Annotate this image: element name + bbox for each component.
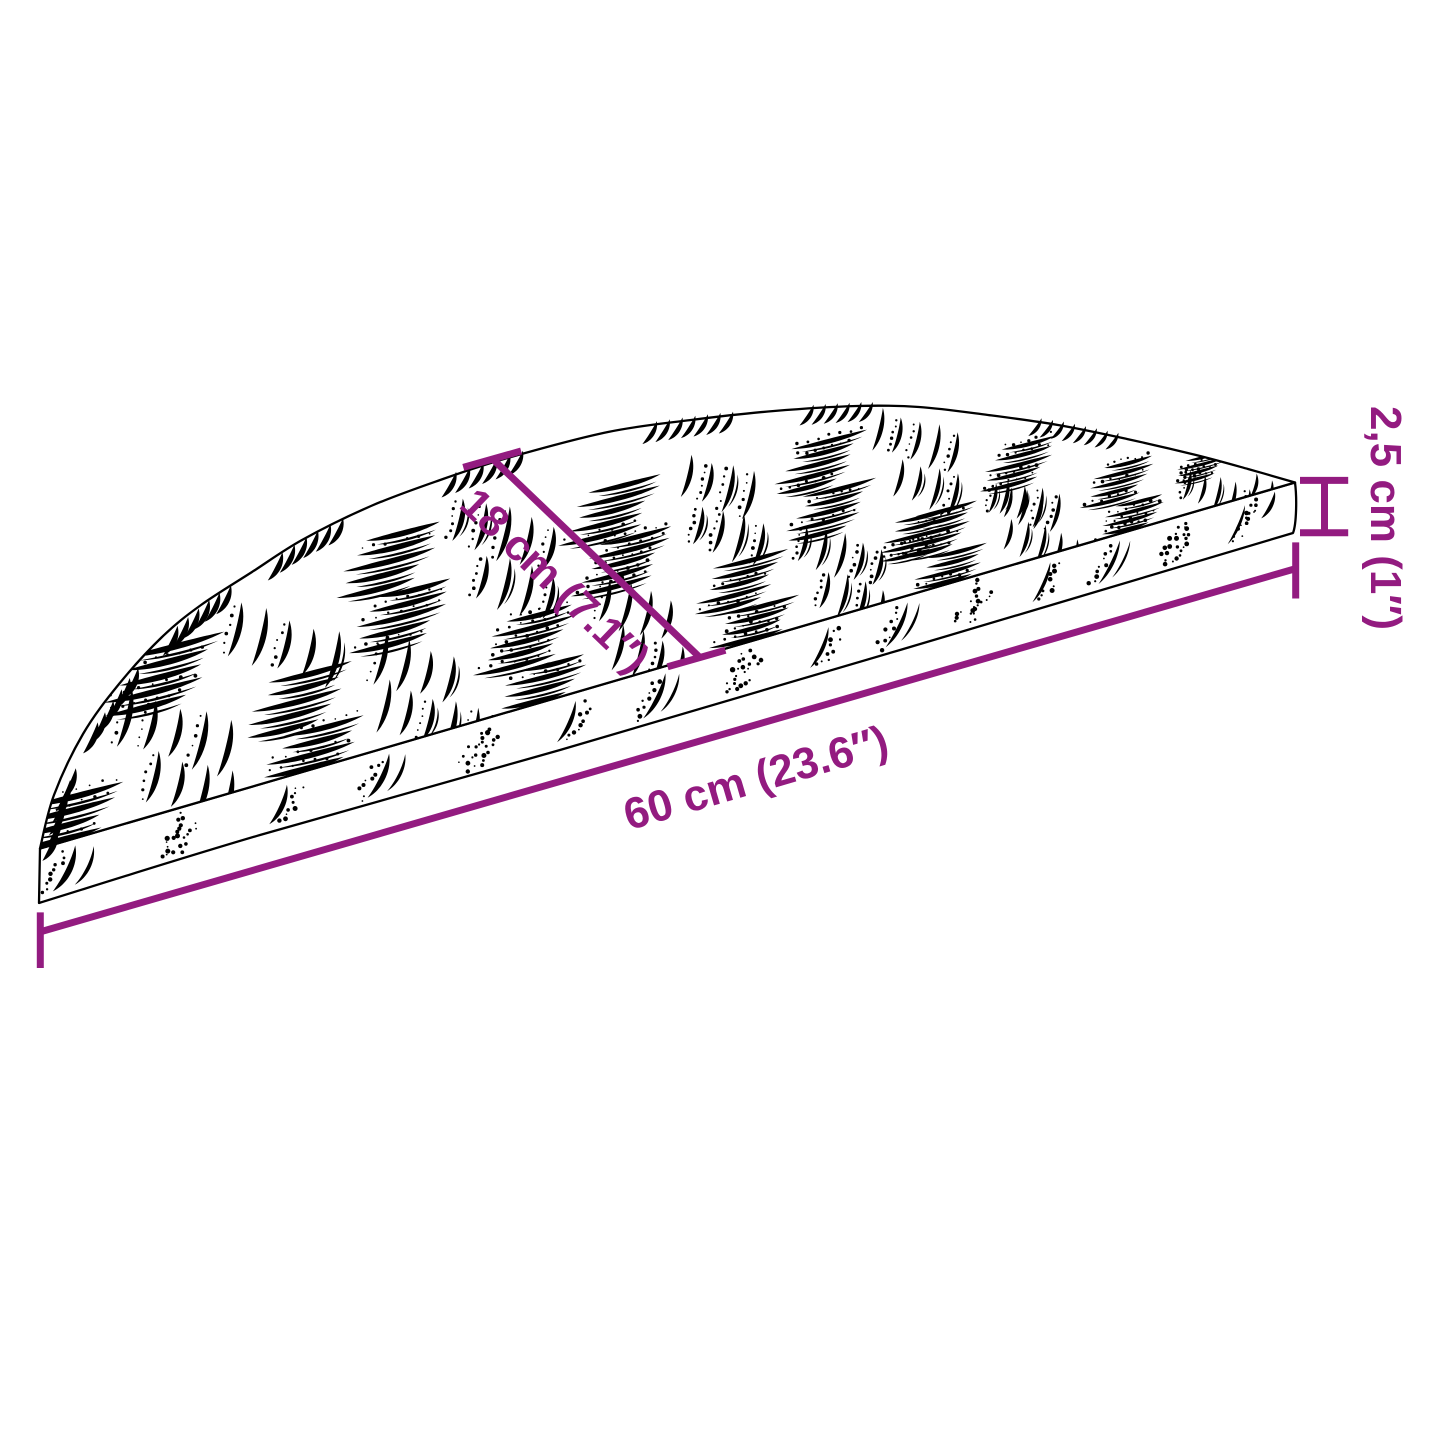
svg-text:2,5 cm (1″): 2,5 cm (1″) [1361,406,1410,630]
